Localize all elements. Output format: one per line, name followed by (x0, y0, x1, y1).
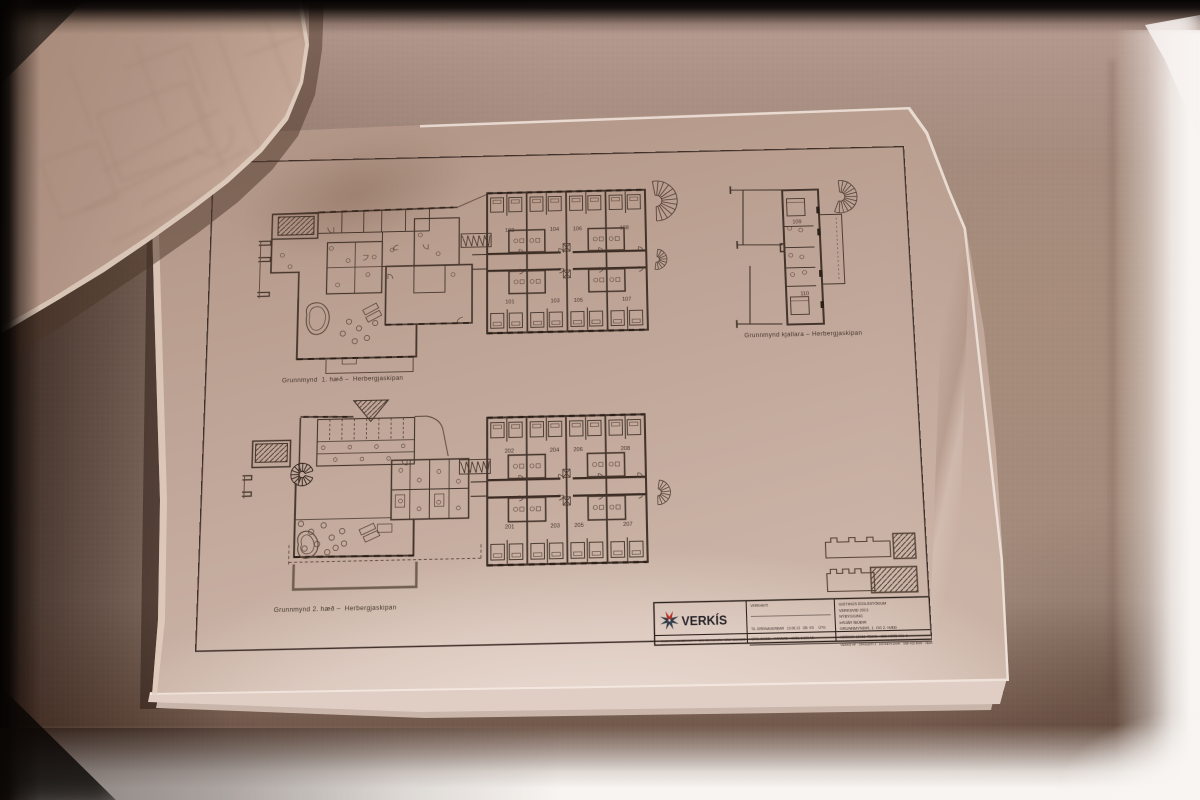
svg-text:SUÐURLANDSBRAUT 4 · 108 REYKJA: SUÐURLANDSBRAUT 4 · 108 REYKJAVÍK · SÍMI… (661, 637, 746, 643)
svg-text:Grunnmynd 1. hæð – Herbergja: Grunnmynd 1. hæð – Herbergjaskipan (282, 374, 403, 384)
svg-text:NÝBYGGING: NÝBYGGING (839, 614, 863, 619)
svg-text:205: 205 (574, 523, 584, 530)
svg-text:207: 207 (623, 521, 633, 528)
svg-text:201: 201 (505, 524, 515, 531)
svg-text:108: 108 (620, 225, 629, 231)
svg-text:103: 103 (551, 298, 560, 304)
svg-text:Grunnmynd 2. hæð – Herbergjas: Grunnmynd 2. hæð – Herbergjaskipan (274, 604, 397, 614)
svg-text:VERKNR 10460 TEIKN C01-HE: VERKNR 10460 TEIKN C01-HERB-001 1 (840, 634, 908, 640)
svg-text:110: 110 (800, 291, 809, 297)
svg-text:109: 109 (792, 219, 801, 225)
svg-text:107: 107 (622, 297, 631, 303)
svg-text:106: 106 (573, 226, 582, 232)
svg-text:208: 208 (621, 446, 631, 453)
svg-text:VERKHEITI: VERKHEITI (750, 603, 768, 608)
svg-text:204: 204 (550, 447, 560, 454)
svg-text:202: 202 (505, 448, 515, 455)
svg-text:203: 203 (550, 523, 560, 530)
svg-text:TIL GREINAGERÐAR 19.06.13: TIL GREINAGERÐAR 19.06.13 GB KS ÚTG (751, 624, 826, 631)
svg-text:ÞRJÁR ÍBÚÐIR: ÞRJÁR ÍBÚÐIR (839, 619, 867, 625)
svg-text:104: 104 (550, 227, 559, 233)
svg-text:GISTIHÚS EGILSSTÖÐUM: GISTIHÚS EGILSSTÖÐUM (839, 600, 887, 607)
svg-text:VERKÍS: VERKÍS (681, 613, 727, 628)
svg-text:ÚTG. DAGS. HANNAÐ MÆL 1:1: ÚTG. DAGS. HANNAÐ MÆL 1:100 A3 (751, 635, 814, 642)
svg-text:105: 105 (574, 298, 583, 304)
svg-text:206: 206 (573, 447, 583, 454)
svg-text:101: 101 (505, 299, 514, 305)
svg-text:Grunnmynd kjallara – Herbergja: Grunnmynd kjallara – Herbergjaskipan (744, 331, 862, 340)
svg-text:VERKSVIÐ 2013: VERKSVIÐ 2013 (839, 608, 869, 613)
